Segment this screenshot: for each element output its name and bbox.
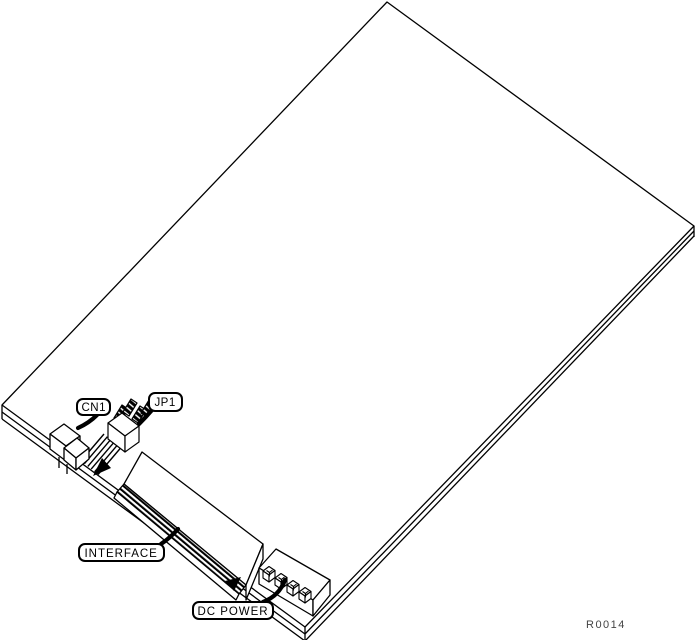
callout-label-jp1: JP1 bbox=[148, 392, 183, 412]
cn1-label-text: CN1 bbox=[81, 400, 105, 414]
interface-label-text: INTERFACE bbox=[85, 546, 158, 560]
jp1-label-text: JP1 bbox=[155, 395, 176, 409]
dc-power-label-text: DC POWER bbox=[197, 604, 268, 618]
callout-label-cn1: CN1 bbox=[76, 398, 111, 416]
drawing-reference-number: R0014 bbox=[586, 619, 626, 631]
callout-label-dc-power: DC POWER bbox=[192, 601, 274, 620]
callout-label-interface: INTERFACE bbox=[78, 543, 165, 562]
board-diagram: CN1 JP1 INTERFACE DC POWER R0014 bbox=[0, 0, 696, 640]
